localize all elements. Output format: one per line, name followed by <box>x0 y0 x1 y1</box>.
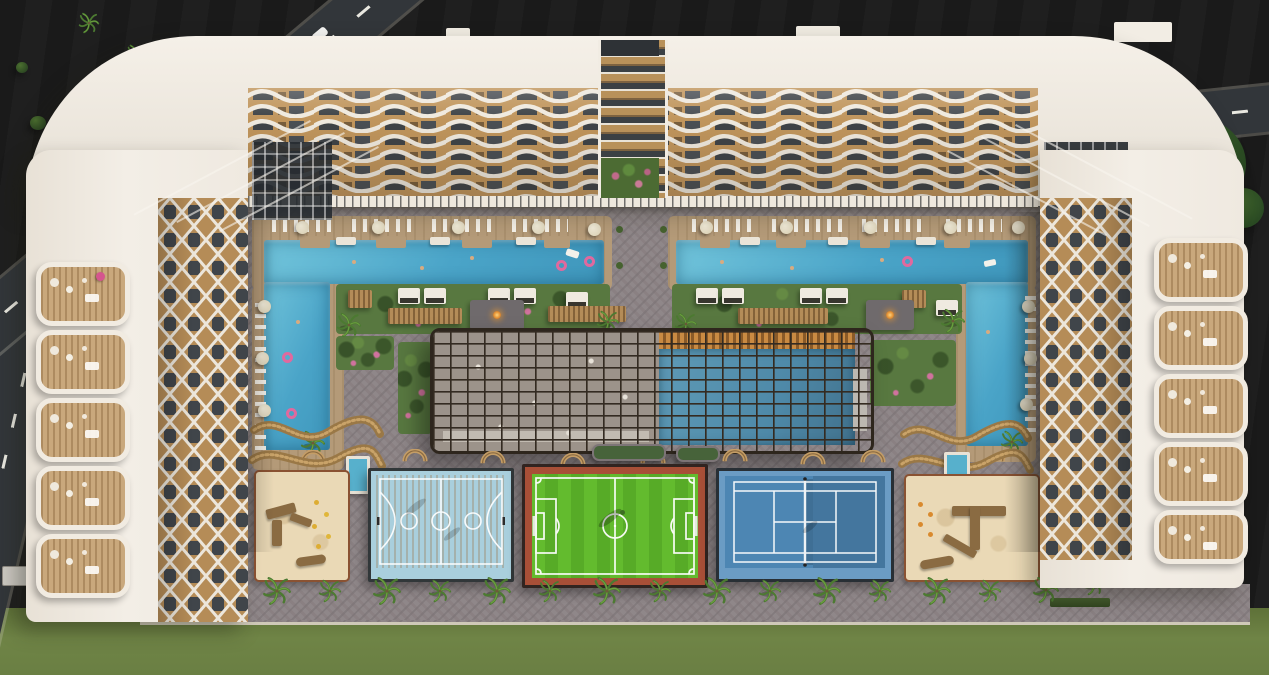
parasol <box>296 221 309 234</box>
football-turf <box>532 474 698 578</box>
deck-notch <box>544 236 570 248</box>
parasol <box>864 221 877 234</box>
court-markings <box>532 474 698 578</box>
cabana <box>826 288 848 304</box>
pergola-walk <box>388 308 462 324</box>
cabana <box>398 288 420 304</box>
cabana <box>722 288 744 304</box>
central-atrium <box>598 40 668 198</box>
basketball-court <box>368 468 514 582</box>
atrium-skylight <box>601 40 659 56</box>
aerial-render <box>0 0 1269 675</box>
court-markings <box>725 476 885 568</box>
curved-bench-icon <box>480 451 506 465</box>
terrace-unit <box>36 534 130 598</box>
terrace-unit <box>1154 306 1248 370</box>
cabana <box>696 288 718 304</box>
lattice-canopy <box>430 328 874 454</box>
court-markings <box>376 475 506 568</box>
pool-step <box>336 237 356 245</box>
facade-shading <box>158 198 248 622</box>
flower-bed <box>398 342 432 434</box>
player-dot <box>620 510 625 515</box>
pool-float-ring <box>584 256 595 267</box>
palm-tree-icon <box>428 579 452 603</box>
palm-tree-icon <box>812 576 842 606</box>
swimmer-dot <box>720 260 724 264</box>
canopy-grid <box>433 331 871 451</box>
planter-box <box>676 446 720 462</box>
play-structure <box>289 512 312 527</box>
goal <box>533 516 536 536</box>
curved-bench-icon <box>722 449 748 463</box>
swimmer-dot <box>880 258 884 262</box>
palm-tree-icon <box>940 308 966 334</box>
wing-shadow <box>248 212 274 552</box>
curved-bench-icon <box>860 450 886 464</box>
atrium-garden <box>601 158 659 198</box>
wing-shadow <box>1004 212 1040 552</box>
planter-box <box>592 444 666 461</box>
pool-step <box>916 237 936 245</box>
palm-tree-icon <box>922 576 952 606</box>
tennis-court <box>716 468 894 582</box>
curved-bench-icon <box>800 452 826 466</box>
palm-tree-icon <box>592 576 622 606</box>
parasol <box>372 221 385 234</box>
deck-notch <box>944 236 970 248</box>
deck-notch <box>462 236 492 248</box>
pool-step <box>740 237 760 245</box>
swimmer-dot <box>296 320 300 324</box>
log-bench <box>296 554 327 567</box>
terrace-unit <box>1154 238 1248 302</box>
palm-tree-icon <box>758 579 782 603</box>
fire-pit-lounge <box>470 300 524 330</box>
shrub <box>616 262 623 269</box>
deck-notch <box>776 236 806 248</box>
shrub <box>660 226 667 233</box>
beanbag-dot <box>314 500 319 505</box>
fire-pit <box>493 311 501 319</box>
terrace-unit <box>1154 442 1248 506</box>
deck-notch <box>300 236 330 248</box>
pool-step <box>828 237 848 245</box>
deck-notch <box>376 236 406 248</box>
parasol <box>452 221 465 234</box>
palm-tree-icon <box>868 579 892 603</box>
pergola-walk <box>738 308 828 324</box>
basketball-floor <box>376 475 506 568</box>
beanbag-dot <box>918 522 923 527</box>
pool-step <box>516 237 536 245</box>
terrace-unit <box>36 330 130 394</box>
palm-tree-icon <box>372 576 402 606</box>
beanbag-dot <box>324 512 329 517</box>
football-pitch <box>522 464 708 588</box>
deck-notch <box>700 236 730 248</box>
facade-shading <box>1040 198 1132 560</box>
palm-tree-icon <box>648 579 672 603</box>
terrace-unit <box>36 262 130 326</box>
terrace-unit <box>1154 374 1248 438</box>
beanbag-dot <box>312 524 317 529</box>
swimmer-dot <box>470 256 474 260</box>
parasol <box>588 223 601 236</box>
cabana <box>800 288 822 304</box>
deck-notch <box>860 236 890 248</box>
palm-tree-icon <box>978 579 1002 603</box>
beanbag-dot <box>918 502 923 507</box>
beanbag-dot <box>326 534 331 539</box>
swimmer-dot <box>986 330 990 334</box>
parasol <box>944 221 957 234</box>
goal <box>695 516 698 536</box>
tennis-surface <box>725 476 885 568</box>
pool-float-ring <box>902 256 913 267</box>
terrace-unit <box>36 398 130 462</box>
parasol <box>700 221 713 234</box>
fire-pit <box>886 311 894 319</box>
palm-tree-icon <box>336 312 362 338</box>
palm-tree-icon <box>702 576 732 606</box>
flower-bed <box>336 336 394 370</box>
palm-tree-icon <box>482 576 512 606</box>
palm-tree-icon <box>538 579 562 603</box>
curved-bench-icon <box>402 449 428 463</box>
terrace-unit <box>1154 510 1248 564</box>
wood-pergola <box>348 290 372 308</box>
swimmer-dot <box>352 260 356 264</box>
shrub <box>16 62 28 73</box>
fire-pit-lounge <box>866 300 914 330</box>
palm-tree-icon <box>318 579 342 603</box>
shrub <box>660 262 667 269</box>
roof-parapet-notch <box>1114 22 1172 42</box>
pool-float-ring <box>556 260 567 271</box>
flower-bed <box>870 340 956 406</box>
play-structure <box>970 506 980 550</box>
pool-step <box>430 237 450 245</box>
shrub <box>616 226 623 233</box>
swimmer-dot <box>420 266 424 270</box>
swimmer-dot <box>790 266 794 270</box>
pool-float-ring <box>282 352 293 363</box>
terrace-unit <box>36 466 130 530</box>
beanbag-dot <box>928 512 933 517</box>
cabana <box>424 288 446 304</box>
beanbag-dot <box>316 544 321 549</box>
palm-tree-icon <box>262 576 292 606</box>
parasol <box>780 221 793 234</box>
pink-parasol <box>96 272 105 281</box>
beanbag-dot <box>928 532 933 537</box>
parasol <box>532 221 545 234</box>
palm-tree-icon <box>78 12 100 34</box>
log-bench <box>919 555 954 570</box>
west-wing <box>26 150 248 622</box>
